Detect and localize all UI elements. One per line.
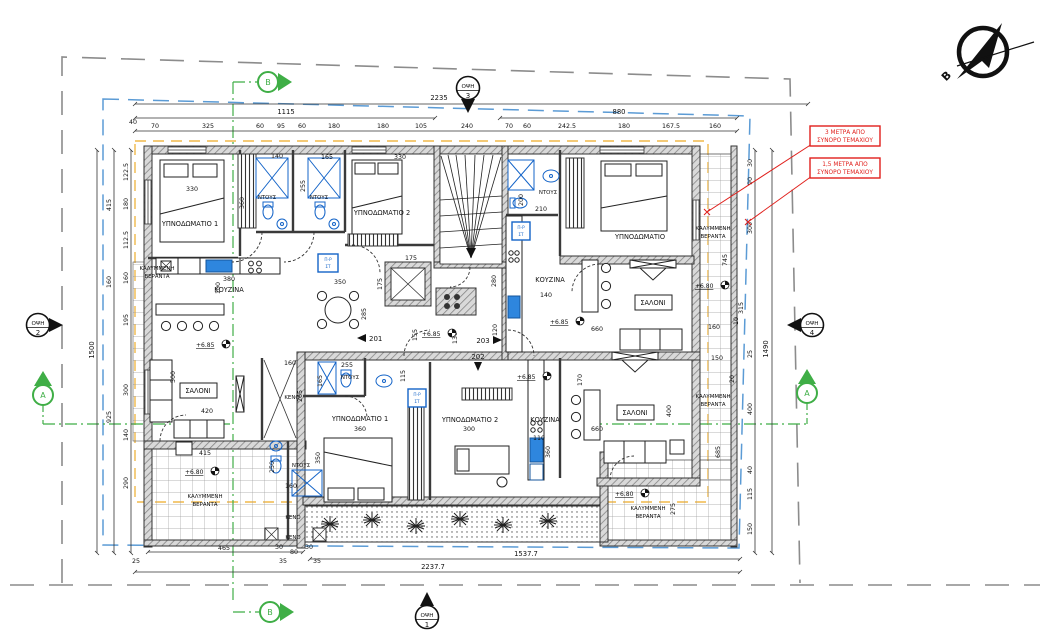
veranda-bottom-right: [604, 460, 731, 540]
svg-text:195: 195: [123, 314, 130, 326]
svg-text:280: 280: [491, 275, 498, 287]
svg-text:A: A: [40, 391, 46, 400]
svg-text:660: 660: [591, 326, 603, 333]
svg-text:330: 330: [394, 154, 406, 161]
veranda-right: [697, 154, 731, 480]
svg-text:ΒΕΡΑΝΤΑ: ΒΕΡΑΝΤΑ: [635, 514, 660, 520]
dining-set: [582, 260, 611, 312]
staircase: [440, 154, 502, 264]
svg-text:40: 40: [747, 466, 754, 474]
svg-text:+6.80: +6.80: [185, 469, 204, 476]
room-kitchen: ΚΟΥΖΙΝΑ: [214, 286, 244, 294]
room-living: ΣΑΛΟΝΙ: [622, 409, 647, 417]
svg-text:290: 290: [123, 477, 130, 489]
svg-text:170: 170: [577, 374, 584, 386]
svg-text:30: 30: [747, 159, 754, 167]
floor-plan-page: Π-Ρ ΣΤ Π-Ρ ΣΤ Π-Ρ ΣΤ: [0, 0, 1044, 635]
svg-text:200: 200: [518, 194, 525, 206]
svg-text:+6.80: +6.80: [615, 491, 634, 498]
svg-text:112.5: 112.5: [123, 231, 130, 249]
svg-text:415: 415: [199, 450, 211, 457]
svg-text:30: 30: [275, 544, 283, 551]
svg-text:A: A: [804, 389, 810, 398]
svg-text:140: 140: [540, 292, 552, 299]
svg-text:30: 30: [305, 544, 313, 551]
svg-text:242.5: 242.5: [558, 123, 576, 130]
washer-label: Π-Ρ: [324, 257, 332, 262]
svg-text:180: 180: [377, 123, 389, 130]
svg-text:210: 210: [535, 206, 547, 213]
unit-203: 203: [476, 337, 489, 345]
svg-text:300: 300: [463, 426, 475, 433]
room-kitchen: ΚΟΥΖΙΝΑ: [535, 276, 565, 284]
svg-text:4: 4: [810, 329, 815, 337]
svg-text:ΚΑΛΥΜΜΕΝΗ: ΚΑΛΥΜΜΕΝΗ: [188, 494, 223, 500]
svg-text:ΟΨΗ: ΟΨΗ: [420, 613, 433, 619]
dryer-label: ΣΤ: [414, 399, 420, 404]
bed: [601, 161, 667, 231]
svg-text:255: 255: [341, 362, 353, 369]
setback-note-3m: 3 ΜΕΤΡΑ ΑΠΟ ΣΥΝΟΡΟ ΤΕΜΑΧΙΟΥ: [810, 126, 880, 146]
svg-text:ΣΥΝΟΡΟ ΤΕΜΑΧΙΟΥ: ΣΥΝΟΡΟ ΤΕΜΑΧΙΟΥ: [817, 138, 873, 144]
room-living: ΣΑΛΟΝΙ: [185, 387, 210, 395]
svg-text:360: 360: [354, 426, 366, 433]
svg-text:350: 350: [315, 452, 322, 464]
svg-text:+6.85: +6.85: [517, 374, 536, 381]
unit-202: 202: [471, 353, 484, 361]
room-bedroom1: ΥΠΝΟΔΩΜΑΤΙΟ 1: [331, 415, 388, 423]
svg-text:160: 160: [123, 272, 130, 284]
dim-overall-left: 1500: [88, 341, 96, 358]
svg-text:420: 420: [201, 408, 213, 415]
room-living: ΣΑΛΟΝΙ: [640, 299, 665, 307]
svg-text:175: 175: [377, 278, 384, 290]
svg-text:105: 105: [415, 123, 427, 130]
svg-text:+6.85: +6.85: [422, 331, 441, 338]
svg-text:300: 300: [747, 222, 754, 234]
svg-text:745: 745: [722, 254, 729, 266]
svg-text:+6.85: +6.85: [550, 319, 569, 326]
svg-text:25: 25: [747, 350, 754, 358]
svg-text:415: 415: [106, 199, 113, 211]
svg-text:1: 1: [425, 621, 429, 629]
dim-bottom-span: 1537.7: [514, 550, 538, 558]
svg-text:ΒΕΡΑΝΤΑ: ΒΕΡΑΝΤΑ: [144, 274, 169, 280]
svg-text:660: 660: [591, 426, 603, 433]
bed: [160, 160, 224, 242]
svg-text:175: 175: [405, 255, 417, 262]
svg-text:180: 180: [618, 123, 630, 130]
room-shower: ΝΤΟΥΣ: [310, 195, 329, 201]
svg-text:40: 40: [129, 119, 137, 126]
svg-text:70: 70: [505, 123, 513, 130]
svg-text:110: 110: [533, 435, 545, 442]
svg-text:160: 160: [285, 483, 297, 490]
svg-text:140: 140: [271, 153, 283, 160]
svg-text:150: 150: [711, 355, 723, 362]
svg-text:B: B: [267, 608, 273, 617]
svg-text:140: 140: [123, 429, 130, 441]
svg-text:325: 325: [202, 123, 214, 130]
kitchen-sink: [508, 296, 520, 318]
svg-text:ΟΨΗ: ΟΨΗ: [31, 321, 44, 327]
svg-text:160: 160: [106, 276, 113, 288]
svg-text:160: 160: [284, 360, 296, 367]
svg-text:465: 465: [218, 545, 230, 552]
room-void: ΚΕΝΟ: [285, 515, 300, 521]
elevator: [385, 262, 431, 306]
svg-text:160: 160: [709, 123, 721, 130]
bed: [324, 438, 392, 502]
room-bedroom2: ΥΠΝΟΔΩΜΑΤΙΟ 2: [353, 209, 410, 217]
room-kitchen: ΚΟΥΖΙΝΑ: [530, 416, 560, 424]
svg-text:B: B: [265, 78, 271, 87]
setback-note-1-5m: 1,5 ΜΕΤΡΑ ΑΠΟ ΣΥΝΟΡΟ ΤΕΜΑΧΙΟΥ: [810, 158, 880, 178]
room-bedroom2: ΥΠΝΟΔΩΜΑΤΙΟ 2: [441, 416, 498, 424]
svg-text:315: 315: [738, 302, 745, 314]
svg-text:160: 160: [708, 324, 720, 331]
svg-text:ΚΑΛΥΜΜΕΝΗ: ΚΑΛΥΜΜΕΝΗ: [696, 226, 731, 232]
svg-text:3 ΜΕΤΡΑ ΑΠΟ: 3 ΜΕΤΡΑ ΑΠΟ: [825, 130, 865, 136]
svg-text:3: 3: [466, 92, 470, 100]
washer-label: Π-Ρ: [517, 225, 525, 230]
svg-text:360: 360: [545, 446, 552, 458]
svg-text:155: 155: [412, 329, 419, 341]
svg-text:ΟΨΗ: ΟΨΗ: [461, 84, 474, 90]
washer-label: Π-Ρ: [413, 392, 421, 397]
svg-text:ΚΑΛΥΜΜΕΝΗ: ΚΑΛΥΜΜΕΝΗ: [631, 506, 666, 512]
svg-text:60: 60: [298, 123, 306, 130]
svg-text:275: 275: [670, 503, 677, 515]
room-void: ΚΕΝΟ: [284, 395, 299, 401]
room-void: ΚΕΝΟ: [285, 535, 300, 541]
dim-span-left: 1115: [277, 108, 294, 116]
dim-overall-right: 1490: [762, 340, 770, 357]
svg-text:ΒΕΡΑΝΤΑ: ΒΕΡΑΝΤΑ: [700, 234, 725, 240]
svg-text:165: 165: [317, 375, 324, 387]
svg-text:255: 255: [300, 180, 307, 192]
svg-text:180: 180: [123, 198, 130, 210]
svg-text:120: 120: [492, 324, 499, 336]
svg-text:685: 685: [715, 446, 722, 458]
dim-overall-top: 2235: [430, 94, 447, 102]
svg-text:+6.85: +6.85: [196, 342, 215, 349]
svg-text:60: 60: [523, 123, 531, 130]
floor-plan-canvas: Π-Ρ ΣΤ Π-Ρ ΣΤ Π-Ρ ΣΤ: [0, 0, 1044, 635]
room-shower: ΝΤΟΥΣ: [258, 195, 277, 201]
svg-text:ΣΥΝΟΡΟ ΤΕΜΑΧΙΟΥ: ΣΥΝΟΡΟ ΤΕΜΑΧΙΟΥ: [817, 170, 873, 176]
svg-text:180: 180: [328, 123, 340, 130]
svg-text:122.5: 122.5: [123, 163, 130, 181]
dryer-label: ΣΤ: [325, 264, 331, 269]
svg-text:350: 350: [334, 279, 346, 286]
svg-text:380: 380: [223, 276, 235, 283]
svg-text:35: 35: [279, 558, 287, 565]
room-shower: ΝΤΟΥΣ: [341, 375, 360, 381]
svg-text:1,5 ΜΕΤΡΑ ΑΠΟ: 1,5 ΜΕΤΡΑ ΑΠΟ: [822, 162, 868, 168]
svg-text:25: 25: [132, 558, 140, 565]
svg-text:ΚΑΛΥΜΜΕΝΗ: ΚΑΛΥΜΜΕΝΗ: [140, 266, 175, 272]
svg-text:ΟΨΗ: ΟΨΗ: [805, 321, 818, 327]
svg-text:ΒΕΡΑΝΤΑ: ΒΕΡΑΝΤΑ: [700, 402, 725, 408]
svg-text:360: 360: [239, 197, 246, 209]
bed: [352, 160, 402, 234]
kitchen-sink: [206, 260, 232, 272]
svg-text:400: 400: [666, 405, 673, 417]
dryer-label: ΣΤ: [518, 232, 524, 237]
sofa: [620, 329, 682, 350]
svg-text:+6.80: +6.80: [695, 283, 714, 290]
svg-text:80: 80: [290, 549, 298, 556]
svg-text:10: 10: [733, 317, 740, 325]
svg-text:285: 285: [361, 308, 368, 320]
room-shower: ΝΤΟΥΣ: [292, 463, 311, 469]
svg-text:ΒΕΡΑΝΤΑ: ΒΕΡΑΝΤΑ: [192, 502, 217, 508]
svg-text:250: 250: [269, 461, 276, 473]
room-bedroom1: ΥΠΝΟΔΩΜΑΤΙΟ 1: [161, 220, 218, 228]
svg-text:95: 95: [277, 123, 285, 130]
svg-text:ΚΑΛΥΜΜΕΝΗ: ΚΑΛΥΜΜΕΝΗ: [696, 394, 731, 400]
room-shower: ΝΤΟΥΣ: [539, 190, 558, 196]
dim-overall-bottom: 2237.7: [421, 563, 445, 571]
svg-text:400: 400: [747, 403, 754, 415]
svg-text:925: 925: [106, 411, 113, 423]
svg-text:35: 35: [313, 558, 321, 565]
svg-text:300: 300: [123, 384, 130, 396]
svg-text:500: 500: [170, 371, 177, 383]
tv: [236, 376, 244, 412]
svg-text:2: 2: [36, 329, 40, 337]
svg-text:115: 115: [400, 370, 407, 382]
room-bedroom: ΥΠΝΟΔΩΜΑΤΙΟ: [614, 233, 665, 241]
unit-201: 201: [369, 335, 382, 343]
svg-text:165: 165: [321, 154, 333, 161]
svg-text:115: 115: [747, 488, 754, 500]
dim-span-right: 880: [613, 108, 626, 116]
svg-text:240: 240: [461, 123, 473, 130]
shaft-block: [436, 288, 476, 315]
svg-text:20: 20: [729, 375, 736, 383]
svg-text:60: 60: [256, 123, 264, 130]
svg-text:150: 150: [747, 523, 754, 535]
svg-text:330: 330: [186, 186, 198, 193]
svg-text:70: 70: [151, 123, 159, 130]
svg-text:167.5: 167.5: [662, 123, 680, 130]
